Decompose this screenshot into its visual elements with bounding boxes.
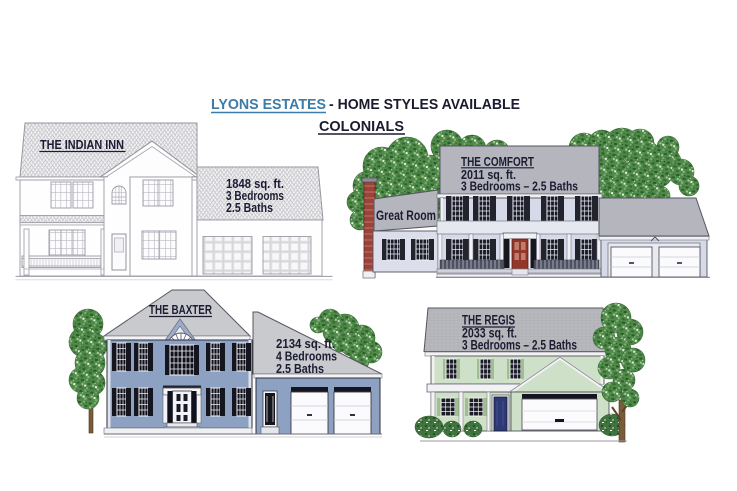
svg-text:THE INDIAN INN: THE INDIAN INN bbox=[40, 138, 124, 152]
svg-text:3 Bedrooms – 2.5 Baths: 3 Bedrooms – 2.5 Baths bbox=[462, 338, 577, 353]
svg-text:- HOME STYLES AVAILABLE: - HOME STYLES AVAILABLE bbox=[329, 96, 520, 113]
svg-text:THE BAXTER: THE BAXTER bbox=[149, 303, 212, 317]
svg-text:Great Room: Great Room bbox=[376, 208, 436, 223]
svg-text:3 Bedrooms – 2.5 Baths: 3 Bedrooms – 2.5 Baths bbox=[461, 179, 578, 194]
svg-text:LYONS ESTATES: LYONS ESTATES bbox=[211, 96, 326, 113]
svg-text:COLONIALS: COLONIALS bbox=[319, 118, 404, 135]
svg-text:2.5 Baths: 2.5 Baths bbox=[276, 362, 324, 376]
svg-text:2.5 Baths: 2.5 Baths bbox=[226, 201, 273, 215]
